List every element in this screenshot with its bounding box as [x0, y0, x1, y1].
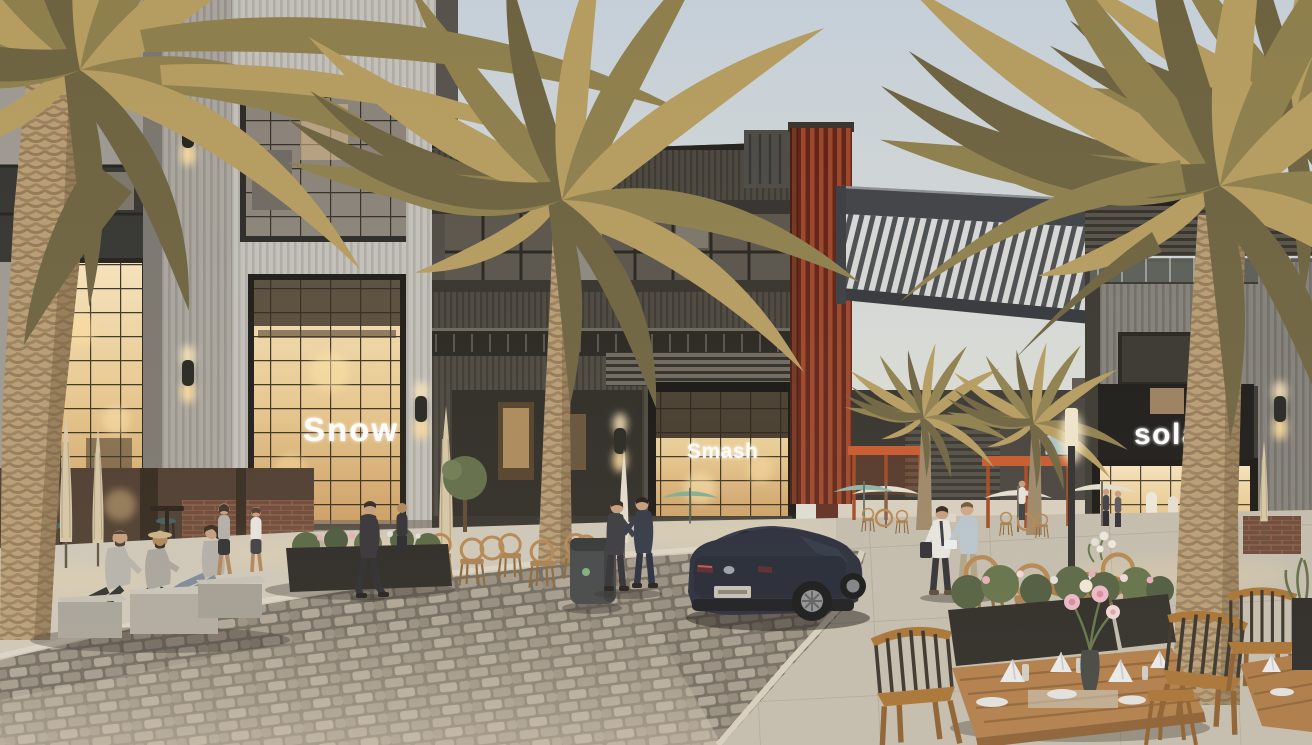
architectural-render: Snow Snow — [0, 0, 1312, 745]
color-grade — [0, 0, 1312, 745]
